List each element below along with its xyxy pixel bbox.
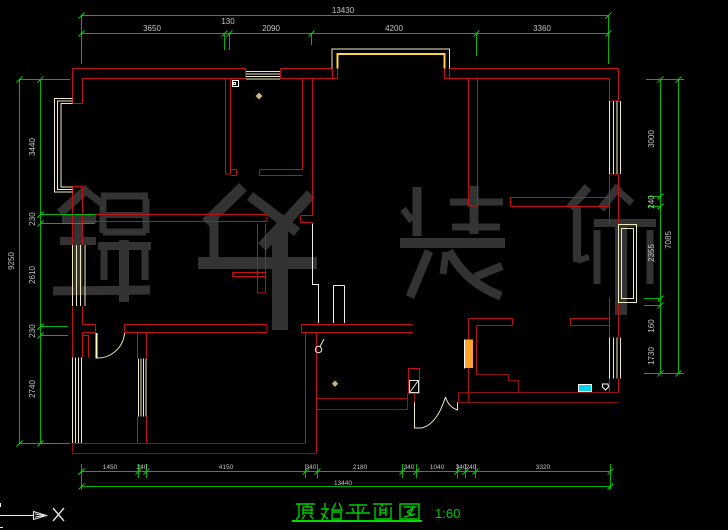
svg-text:340: 340 (306, 464, 317, 471)
svg-text:1040: 1040 (430, 464, 445, 471)
svg-text:13430: 13430 (332, 6, 355, 15)
svg-text:160: 160 (647, 319, 656, 333)
svg-text:2180: 2180 (353, 464, 368, 471)
svg-text:1730: 1730 (647, 347, 656, 365)
svg-text:2090: 2090 (262, 24, 280, 33)
svg-text:4200: 4200 (385, 24, 403, 33)
svg-text:230: 230 (28, 212, 37, 226)
svg-text:7085: 7085 (664, 231, 673, 249)
svg-text:3650: 3650 (143, 24, 161, 33)
svg-text:1450: 1450 (103, 464, 118, 471)
svg-text:3000: 3000 (647, 130, 656, 148)
svg-text:2740: 2740 (28, 380, 37, 398)
svg-text:240: 240 (466, 464, 477, 471)
svg-text:230: 230 (28, 324, 37, 338)
svg-text:240: 240 (647, 195, 656, 209)
svg-text:13440: 13440 (334, 480, 352, 487)
svg-text:9250: 9250 (7, 252, 16, 270)
svg-text:2610: 2610 (28, 266, 37, 284)
svg-text:3320: 3320 (536, 464, 551, 471)
svg-text:240: 240 (137, 464, 148, 471)
svg-text:1:60: 1:60 (435, 506, 460, 521)
svg-text:4150: 4150 (219, 464, 234, 471)
svg-text:3360: 3360 (533, 24, 551, 33)
svg-text:3440: 3440 (28, 138, 37, 156)
svg-text:340: 340 (404, 464, 415, 471)
svg-text:130: 130 (221, 17, 235, 26)
svg-text:2355: 2355 (647, 244, 656, 262)
